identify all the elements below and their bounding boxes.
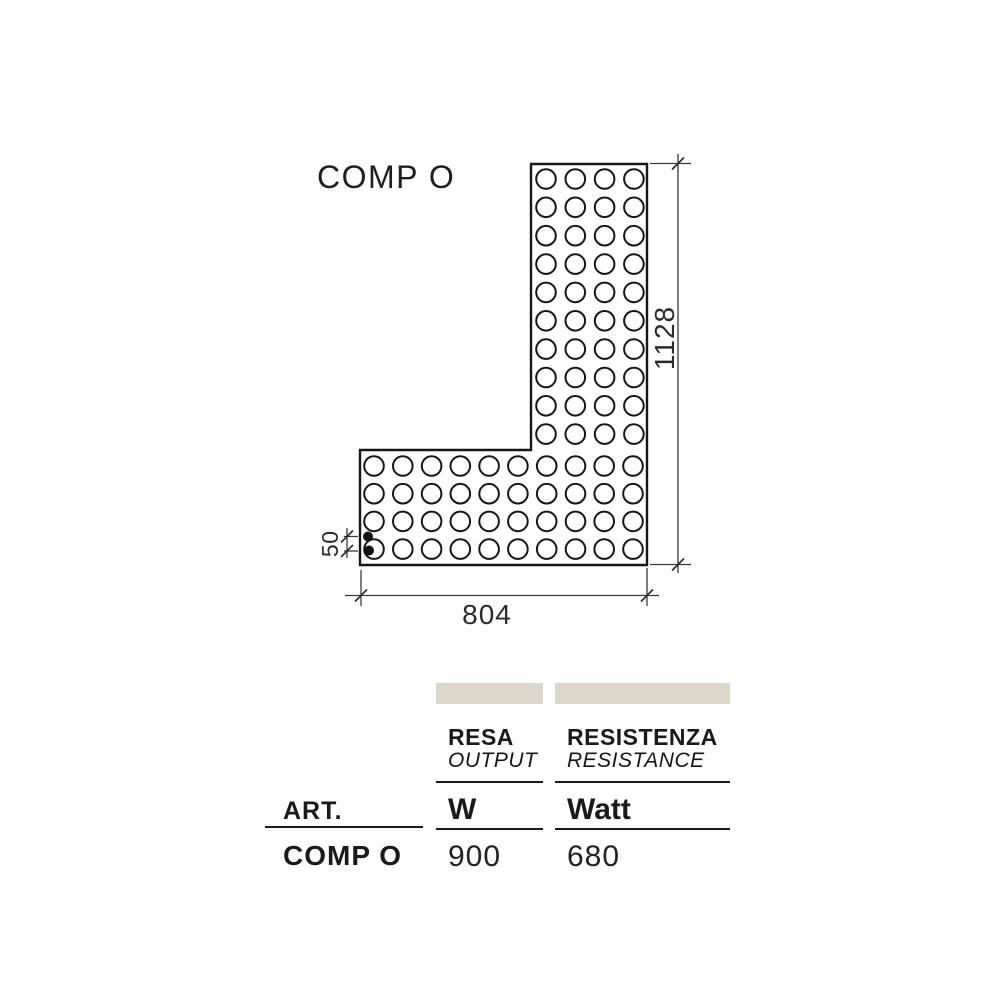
radiator-hole <box>595 283 615 303</box>
radiator-hole <box>393 484 413 504</box>
radiator-hole <box>451 484 471 504</box>
article-name: COMP O <box>283 840 402 872</box>
radiator-hole <box>536 198 556 218</box>
radiator-hole <box>566 424 586 444</box>
page-title: COMP O <box>317 159 455 196</box>
radiator-hole <box>422 539 442 559</box>
radiator-hole <box>594 456 614 476</box>
art-column-label: ART. <box>283 797 343 826</box>
radiator-hole <box>623 539 643 559</box>
radiator-hole <box>536 396 556 416</box>
table-rule <box>555 828 730 830</box>
radiator-hole <box>595 169 615 189</box>
radiator-hole <box>566 456 586 476</box>
dimension-spacing: 50 <box>317 528 358 558</box>
output-value: 900 <box>448 840 501 874</box>
radiator-hole <box>624 254 644 274</box>
radiator-hole <box>566 283 586 303</box>
radiator-hole <box>594 484 614 504</box>
radiator-hole <box>595 254 615 274</box>
column-header-resa: RESA <box>448 724 514 751</box>
radiator-hole <box>624 198 644 218</box>
radiator-hole <box>451 512 471 532</box>
radiator-hole <box>451 539 471 559</box>
radiator-hole <box>566 512 586 532</box>
radiator-hole <box>566 311 586 331</box>
unit-watt-w: W <box>448 793 476 827</box>
radiator-hole <box>508 456 528 476</box>
radiator-hole <box>595 396 615 416</box>
radiator-hole <box>422 456 442 476</box>
table-header-bar <box>436 683 543 704</box>
radiator-hole <box>479 456 499 476</box>
radiator-hole <box>566 226 586 246</box>
connection-dot <box>363 532 373 542</box>
radiator-hole <box>364 484 384 504</box>
radiator-hole <box>422 484 442 504</box>
column-header-resistenza: RESISTENZA <box>567 724 718 751</box>
radiator-hole <box>594 512 614 532</box>
radiator-hole <box>623 484 643 504</box>
column-header-output: OUTPUT <box>448 749 537 773</box>
radiator-hole <box>536 368 556 388</box>
radiator-hole <box>536 311 556 331</box>
radiator-hole <box>624 311 644 331</box>
radiator-hole <box>537 484 557 504</box>
column-header-resistance: RESISTANCE <box>567 749 705 773</box>
radiator-hole <box>537 539 557 559</box>
radiator-hole <box>624 396 644 416</box>
radiator-hole <box>623 512 643 532</box>
radiator-hole <box>536 254 556 274</box>
radiator-hole <box>479 512 499 532</box>
radiator-hole <box>393 539 413 559</box>
radiator-hole <box>595 339 615 359</box>
radiator-hole <box>536 424 556 444</box>
radiator-hole <box>537 456 557 476</box>
radiator-hole <box>508 484 528 504</box>
radiator-outline <box>360 164 647 565</box>
radiator-hole <box>536 169 556 189</box>
unit-watt: Watt <box>567 793 631 827</box>
dimension-height-label: 1128 <box>649 306 680 370</box>
radiator-hole <box>624 339 644 359</box>
dimension-height: 1128 <box>649 154 691 573</box>
radiator-hole <box>566 396 586 416</box>
radiator-hole <box>623 456 643 476</box>
radiator-hole <box>595 368 615 388</box>
radiator-hole <box>595 198 615 218</box>
radiator-hole <box>536 226 556 246</box>
radiator-hole <box>536 283 556 303</box>
radiator-hole <box>624 424 644 444</box>
radiator-hole <box>594 539 614 559</box>
radiator-hole <box>536 339 556 359</box>
radiator-hole <box>595 311 615 331</box>
radiator-hole <box>624 283 644 303</box>
connection-dot <box>364 546 374 556</box>
dimension-spacing-label: 50 <box>317 531 343 558</box>
dimension-width: 804 <box>345 568 659 630</box>
dimension-width-label: 804 <box>462 599 512 630</box>
radiator-hole <box>566 169 586 189</box>
spec-sheet-page: 1128 804 50 COMP O RESA OUTPUT RESISTENZ… <box>0 0 1000 1000</box>
radiator-hole <box>624 226 644 246</box>
radiator-hole <box>364 512 384 532</box>
radiator-hole <box>566 368 586 388</box>
radiator-hole <box>508 512 528 532</box>
radiator-hole <box>595 226 615 246</box>
table-rule <box>436 781 543 783</box>
radiator-hole <box>479 484 499 504</box>
radiator-hole <box>537 512 557 532</box>
radiator-hole <box>364 456 384 476</box>
radiator-hole <box>451 456 471 476</box>
radiator-hole <box>624 368 644 388</box>
radiator-hole <box>393 512 413 532</box>
radiator-hole <box>566 539 586 559</box>
radiator-hole <box>566 254 586 274</box>
radiator-hole <box>595 424 615 444</box>
table-rule <box>436 828 543 830</box>
table-rule <box>265 826 423 828</box>
radiator-hole <box>566 198 586 218</box>
table-header-bar <box>555 683 730 704</box>
radiator-hole <box>508 539 528 559</box>
radiator-hole <box>422 512 442 532</box>
table-rule <box>555 781 730 783</box>
radiator-hole <box>479 539 499 559</box>
radiator-hole <box>566 484 586 504</box>
radiator-hole <box>566 339 586 359</box>
resistance-value: 680 <box>567 840 620 874</box>
radiator-hole <box>393 456 413 476</box>
radiator-hole <box>624 169 644 189</box>
